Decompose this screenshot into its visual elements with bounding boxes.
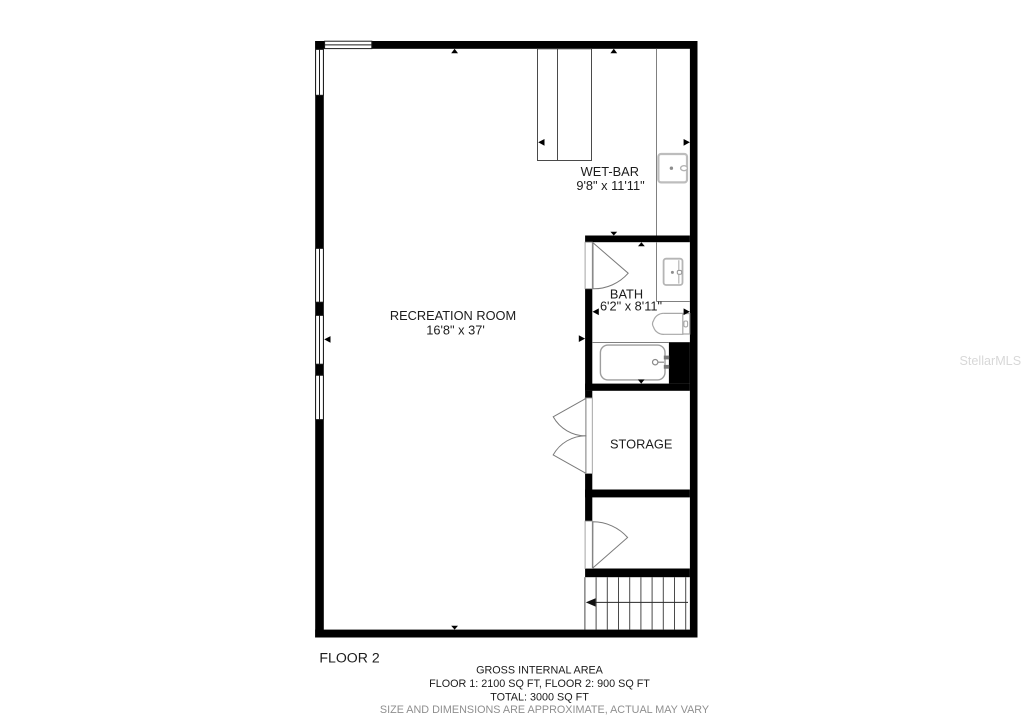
svg-text:6'2" x 8'11": 6'2" x 8'11"	[600, 298, 662, 313]
svg-text:STORAGE: STORAGE	[610, 437, 672, 452]
svg-text:GROSS INTERNAL AREA: GROSS INTERNAL AREA	[476, 664, 604, 676]
svg-text:RECREATION ROOM: RECREATION ROOM	[390, 308, 516, 323]
svg-text:SIZE AND DIMENSIONS ARE APPROX: SIZE AND DIMENSIONS ARE APPROXIMATE, ACT…	[380, 704, 709, 716]
svg-text:StellarMLS: StellarMLS	[960, 354, 1022, 368]
svg-text:9'8" x 11'11": 9'8" x 11'11"	[576, 178, 644, 193]
svg-text:WET-BAR: WET-BAR	[581, 164, 639, 179]
svg-text:FLOOR 2: FLOOR 2	[319, 649, 379, 665]
svg-text:16'8" x 37': 16'8" x 37'	[426, 322, 485, 337]
svg-text:FLOOR 1: 2100 SQ FT, FLOOR 2:: FLOOR 1: 2100 SQ FT, FLOOR 2: 900 SQ FT	[429, 678, 650, 690]
svg-text:TOTAL: 3000 SQ FT: TOTAL: 3000 SQ FT	[490, 691, 589, 703]
